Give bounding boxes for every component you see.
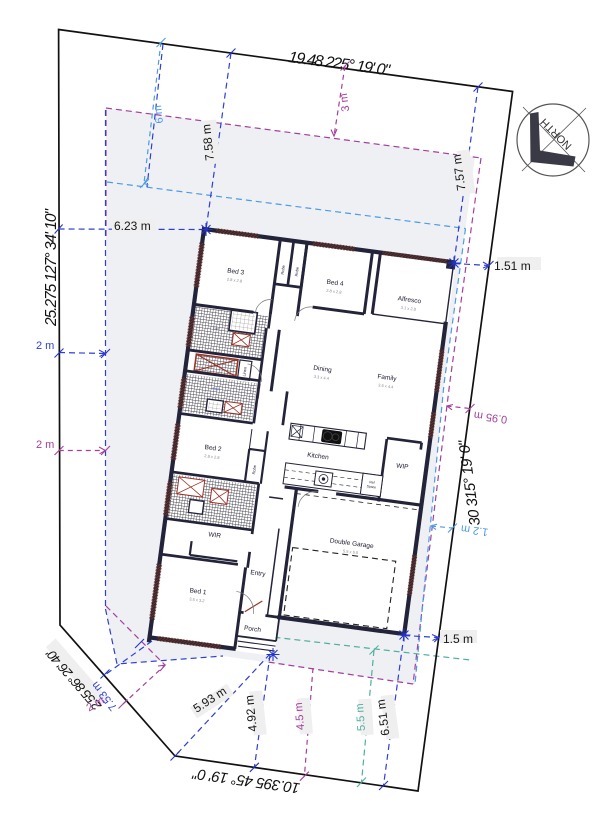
svg-text:25.275 127° 34' 10": 25.275 127° 34' 10" bbox=[43, 208, 60, 327]
svg-text:2 m: 2 m bbox=[36, 439, 54, 451]
svg-text:6.23 m: 6.23 m bbox=[114, 219, 151, 233]
svg-text:4.5 m: 4.5 m bbox=[293, 702, 307, 730]
svg-text:3 m: 3 m bbox=[338, 92, 352, 112]
svg-text:1.51 m: 1.51 m bbox=[494, 259, 531, 273]
svg-text:2 m: 2 m bbox=[36, 340, 54, 352]
svg-text:Ens: Ens bbox=[213, 326, 220, 331]
svg-text:1.5 m: 1.5 m bbox=[443, 632, 473, 646]
svg-text:6 m: 6 m bbox=[152, 105, 166, 124]
svg-text:5.5 m: 5.5 m bbox=[354, 703, 368, 731]
